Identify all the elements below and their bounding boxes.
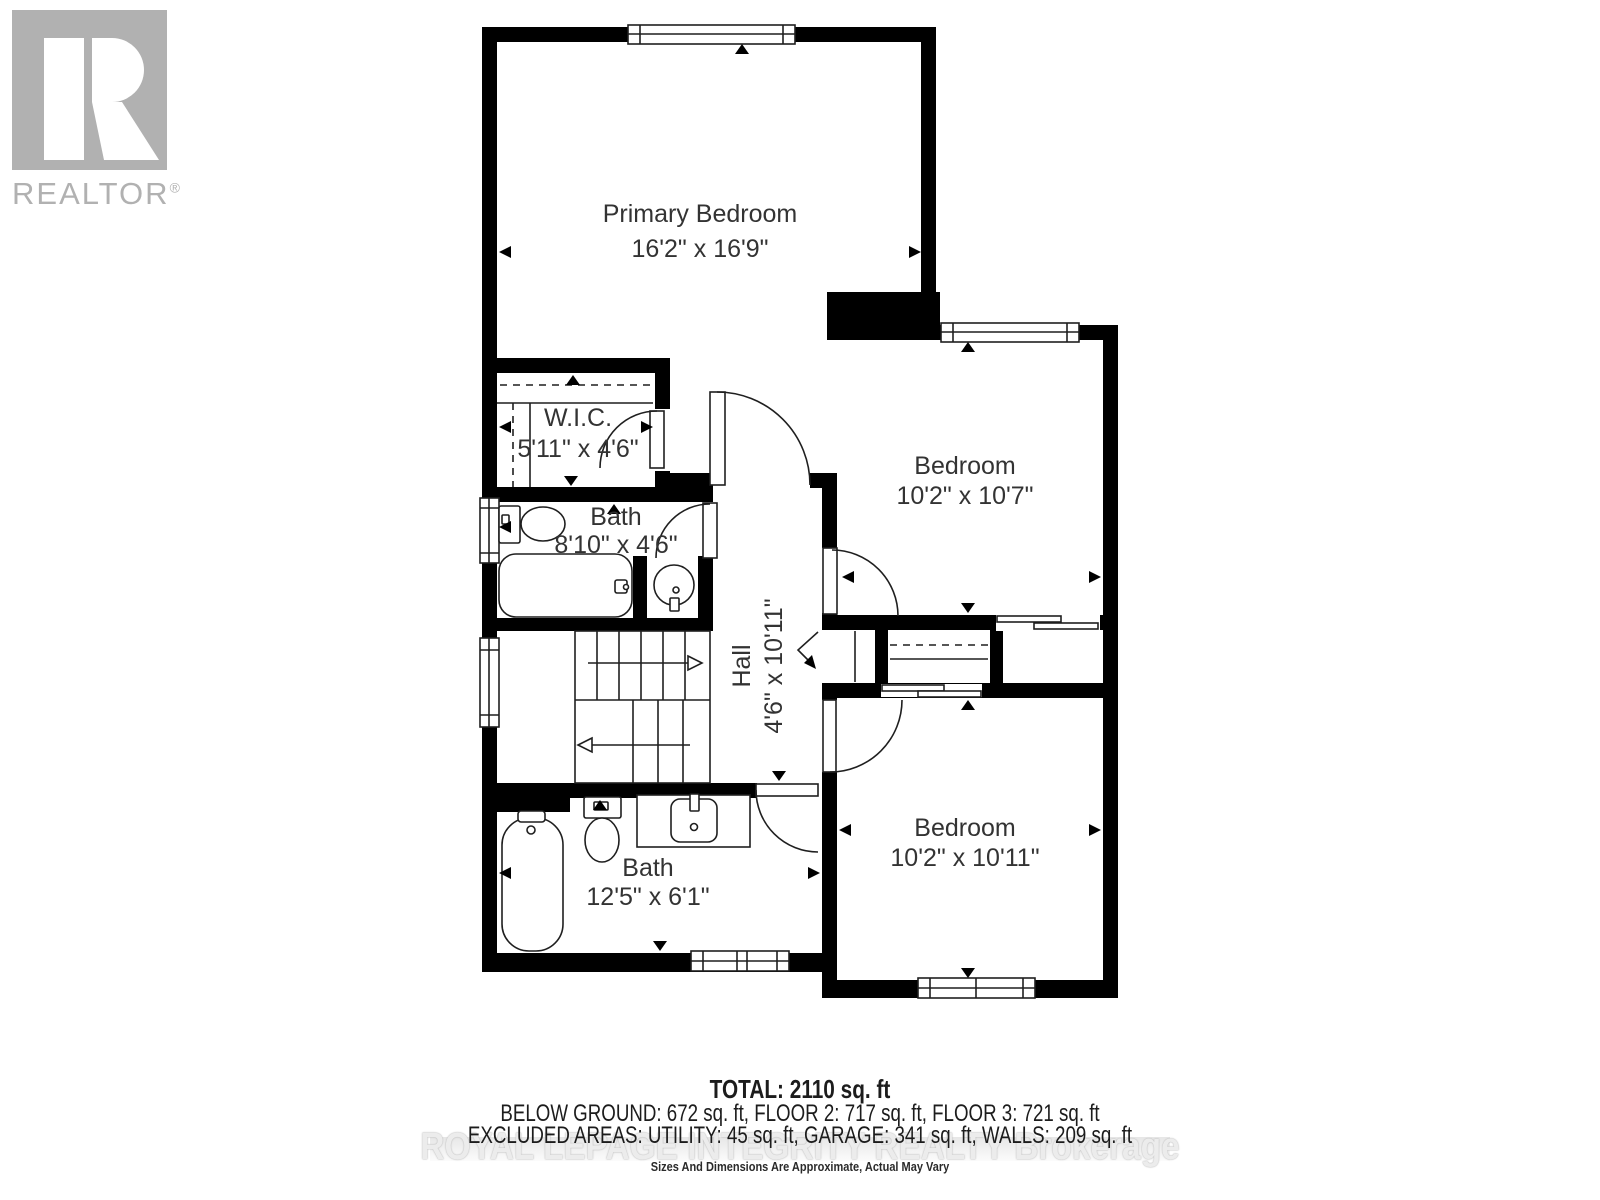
- bath-lower-label: Bath: [622, 854, 673, 882]
- window-bath-upper-left: [480, 498, 499, 563]
- wic-dims: 5'11" x 4'6": [517, 435, 638, 463]
- bedroom-upper-label: Bedroom: [914, 452, 1015, 480]
- disclaimer-text: Sizes And Dimensions Are Approximate, Ac…: [96, 1160, 1504, 1174]
- floor-plan: Primary Bedroom 16'2" x 16'9" W.I.C. 5'1…: [0, 0, 1600, 1200]
- door-bedroom-upper: [823, 548, 898, 616]
- hall-bent-arrow: [798, 632, 818, 669]
- bath-upper-label: Bath: [590, 503, 641, 531]
- floorplan-page: REALTOR®: [0, 0, 1600, 1200]
- primary-bedroom-dims: 16'2" x 16'9": [631, 235, 768, 263]
- wic-label: W.I.C.: [544, 404, 612, 432]
- window-bath-lower: [691, 951, 789, 971]
- sink-icon-upper: [654, 565, 694, 611]
- bedroom-upper-dims: 10'2" x 10'7": [896, 482, 1033, 510]
- door-bedroom-lower: [822, 700, 902, 772]
- window-stair-left: [480, 638, 499, 727]
- window-bedroom-lower: [918, 978, 1035, 998]
- bathtub-icon-lower: [502, 811, 563, 951]
- excluded-areas-text: EXCLUDED AREAS: UTILITY: 45 sq. ft, GARA…: [176, 1122, 1424, 1150]
- door-bath-lower: [756, 784, 818, 852]
- bathtub-icon-upper: [499, 554, 632, 617]
- bedroom-lower-dims: 10'2" x 10'11": [890, 844, 1039, 872]
- primary-bedroom-label: Primary Bedroom: [603, 200, 798, 228]
- hall-dims: 4'6" x 10'11": [760, 598, 788, 733]
- window-bedroom-upper: [941, 323, 1079, 342]
- bath-lower-dims: 12'5" x 6'1": [586, 883, 709, 911]
- window-primary-top: [628, 25, 795, 44]
- staircase: [575, 631, 710, 783]
- hall-label: Hall: [728, 644, 756, 687]
- bedroom-lower-label: Bedroom: [914, 814, 1015, 842]
- bath-upper-dims: 8'10" x 4'6": [554, 531, 677, 559]
- stair-down-arrow: [578, 738, 690, 752]
- door-hall: [710, 392, 810, 485]
- vanity-sink-icon-lower: [637, 794, 750, 847]
